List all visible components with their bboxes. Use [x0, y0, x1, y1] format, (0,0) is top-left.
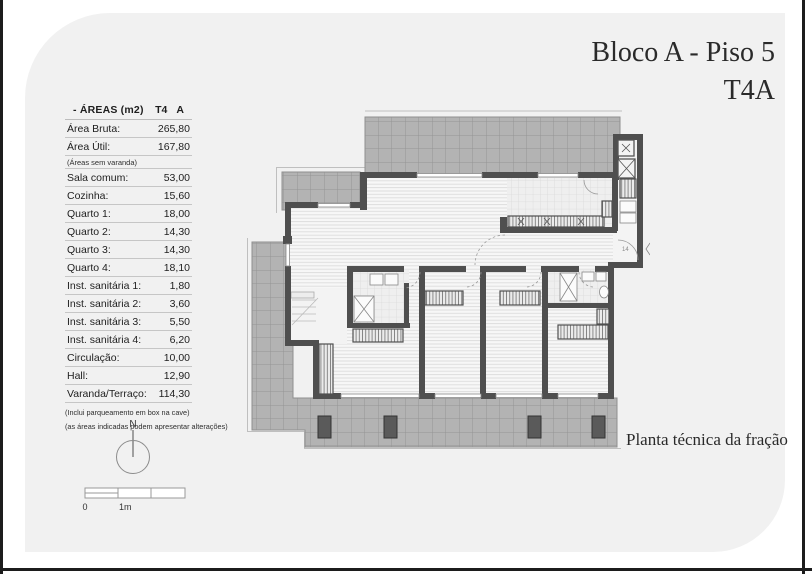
table-row: Inst. sanitária 1:1,80 — [65, 277, 192, 295]
area-value: 167,80 — [158, 141, 190, 153]
appliance — [620, 179, 636, 198]
table-row: Varanda/Terraço:114,30 — [65, 385, 192, 403]
area-label: Quarto 2: — [67, 226, 111, 238]
scale-bar: 0 1m — [78, 482, 203, 514]
area-label: Circulação: — [67, 352, 120, 364]
table-row: Inst. sanitária 4:6,20 — [65, 331, 192, 349]
scale-zero-label: 0 — [82, 502, 87, 512]
area-value: 18,10 — [164, 262, 190, 274]
table-footnote: (Inclui parqueamento em box na cave) — [65, 408, 192, 417]
fraction-title: T4A — [591, 74, 775, 108]
pillar — [592, 416, 605, 438]
area-label: Quarto 3: — [67, 244, 111, 256]
appliance — [602, 201, 612, 217]
area-value: 6,20 — [170, 334, 190, 346]
pillar — [528, 416, 541, 438]
areas-header-typology: T4 — [155, 104, 167, 116]
area-value: 14,30 — [164, 226, 190, 238]
table-row: Quarto 2:14,30 — [65, 223, 192, 241]
scan-frame-left — [0, 0, 3, 574]
area-label: Área Bruta: — [67, 123, 120, 135]
cistern — [620, 201, 636, 212]
area-label: Inst. sanitária 2: — [67, 298, 141, 310]
areas-header-fraction: A — [176, 104, 184, 116]
table-row: Quarto 1:18,00 — [65, 205, 192, 223]
table-row: Inst. sanitária 3:5,50 — [65, 313, 192, 331]
area-label: Inst. sanitária 4: — [67, 334, 141, 346]
area-label: Inst. sanitária 1: — [67, 280, 141, 292]
entrance-label: 14 — [622, 247, 629, 253]
table-row: Circulação:10,00 — [65, 349, 192, 367]
area-value: 53,00 — [164, 172, 190, 184]
elevator-shafts — [618, 140, 635, 178]
plan-caption: Planta técnica da fração — [626, 430, 788, 450]
area-label: Cozinha: — [67, 190, 108, 202]
sink — [370, 274, 383, 285]
wardrobe — [353, 329, 403, 342]
scale-unit-label: 1m — [119, 502, 132, 512]
kitchen-counter — [508, 216, 604, 227]
floor-plan-drawing: 14 — [245, 105, 650, 455]
wardrobe — [558, 325, 608, 339]
area-label: (Áreas sem varanda) — [67, 158, 137, 167]
wardrobe — [425, 291, 463, 305]
table-row: Cozinha:15,60 — [65, 187, 192, 205]
area-value: 12,90 — [164, 370, 190, 382]
area-label: Varanda/Terraço: — [67, 388, 147, 400]
area-label: Quarto 1: — [67, 208, 111, 220]
closet — [597, 309, 609, 324]
area-value: 15,60 — [164, 190, 190, 202]
area-label: Sala comum: — [67, 172, 128, 184]
area-value: 1,80 — [170, 280, 190, 292]
terrace-top — [365, 117, 620, 177]
entry-chevron — [646, 243, 650, 255]
pillar — [384, 416, 397, 438]
table-row: Área Útil:167,80 — [65, 138, 192, 156]
sink — [385, 274, 398, 285]
area-label: Quarto 4: — [67, 262, 111, 274]
areas-table-header: - ÁREAS (m2) T4 A — [65, 103, 192, 120]
area-label: Inst. sanitária 3: — [67, 316, 141, 328]
table-row: Inst. sanitária 2:3,60 — [65, 295, 192, 313]
toilet — [600, 286, 609, 298]
north-compass: N — [105, 418, 165, 480]
area-value: 18,00 — [164, 208, 190, 220]
sink — [596, 272, 606, 281]
scan-frame-bottom — [0, 568, 812, 571]
pillar — [318, 416, 331, 438]
area-value: 10,00 — [164, 352, 190, 364]
cistern — [620, 213, 636, 223]
area-label: Área Útil: — [67, 141, 110, 153]
wardrobe — [319, 344, 333, 394]
table-row: Quarto 3:14,30 — [65, 241, 192, 259]
wardrobe — [500, 291, 540, 305]
table-row: Quarto 4:18,10 — [65, 259, 192, 277]
table-row-note: (Áreas sem varanda) — [65, 156, 192, 169]
area-value: 14,30 — [164, 244, 190, 256]
area-value: 5,50 — [170, 316, 190, 328]
table-row: Hall:12,90 — [65, 367, 192, 385]
north-label: N — [129, 419, 136, 430]
sink — [582, 272, 594, 281]
table-row: Área Bruta:265,80 — [65, 120, 192, 138]
scanned-brochure-page: Bloco A - Piso 5 T4A - ÁREAS (m2) T4 A Á… — [0, 0, 812, 574]
area-value: 265,80 — [158, 123, 190, 135]
areas-table: - ÁREAS (m2) T4 A Área Bruta:265,80 Área… — [65, 103, 192, 431]
scan-frame-right — [802, 0, 805, 574]
areas-header-title: - ÁREAS (m2) — [73, 104, 155, 116]
table-row: Sala comum:53,00 — [65, 169, 192, 187]
area-value: 3,60 — [170, 298, 190, 310]
area-value: 114,30 — [159, 388, 190, 400]
title-block: Bloco A - Piso 5 T4A — [591, 36, 775, 108]
area-label: Hall: — [67, 370, 88, 382]
page-title: Bloco A - Piso 5 — [591, 36, 775, 70]
